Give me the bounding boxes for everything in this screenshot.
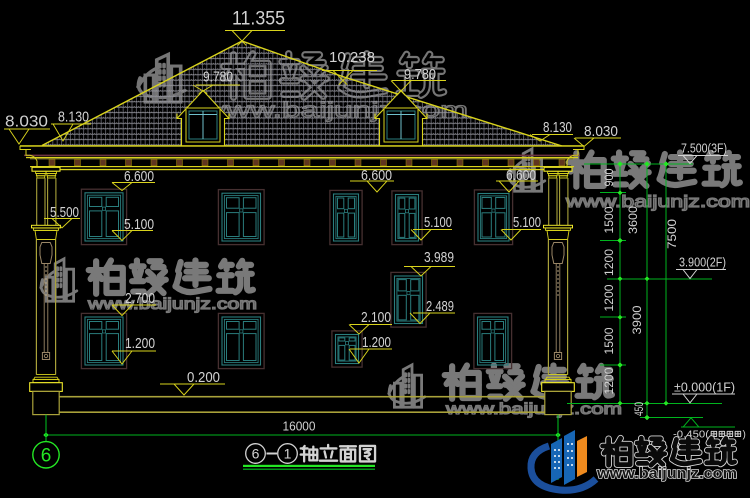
svg-text:3.900(2F): 3.900(2F) xyxy=(679,255,726,270)
svg-text:0.200: 0.200 xyxy=(187,369,220,386)
svg-text:5.100: 5.100 xyxy=(513,214,541,231)
svg-text:1: 1 xyxy=(284,446,292,462)
svg-text:3600: 3600 xyxy=(626,206,640,234)
svg-text:1200: 1200 xyxy=(602,367,616,394)
svg-text:6: 6 xyxy=(41,446,52,467)
svg-text:8.130: 8.130 xyxy=(58,109,89,126)
svg-text:450: 450 xyxy=(632,402,646,416)
svg-text:1200: 1200 xyxy=(602,284,616,311)
svg-text:2.100: 2.100 xyxy=(361,309,391,326)
svg-text:10.238: 10.238 xyxy=(329,49,375,66)
svg-text:www.baijunjz.com: www.baijunjz.com xyxy=(565,192,750,211)
svg-text:6: 6 xyxy=(252,446,260,462)
svg-text:1.200: 1.200 xyxy=(125,335,155,352)
svg-text:11.355: 11.355 xyxy=(232,9,285,30)
svg-text:www.baijunjz.com: www.baijunjz.com xyxy=(87,296,257,313)
svg-text:7.500(3F): 7.500(3F) xyxy=(681,141,727,156)
svg-text:1500: 1500 xyxy=(602,327,616,354)
svg-text:±0.000(1F): ±0.000(1F) xyxy=(674,380,735,395)
svg-text:2.489: 2.489 xyxy=(426,298,454,315)
svg-text:2.700: 2.700 xyxy=(125,290,155,307)
svg-text:3900: 3900 xyxy=(630,305,644,334)
svg-text:5.100: 5.100 xyxy=(424,214,452,231)
svg-text:7500: 7500 xyxy=(665,219,679,249)
svg-text:16000: 16000 xyxy=(283,419,316,434)
svg-text:): ) xyxy=(743,430,746,441)
svg-text:1200: 1200 xyxy=(602,249,616,276)
svg-text:8.030: 8.030 xyxy=(584,123,618,140)
svg-text:900: 900 xyxy=(602,168,616,186)
svg-text:1500: 1500 xyxy=(602,206,616,233)
svg-text:8.030: 8.030 xyxy=(5,114,48,131)
svg-text:9.780: 9.780 xyxy=(203,69,233,86)
svg-text:3.989: 3.989 xyxy=(424,249,454,266)
svg-text:www.baijunjz.com: www.baijunjz.com xyxy=(596,465,737,482)
svg-text:1.200: 1.200 xyxy=(362,334,391,351)
svg-text:8.130: 8.130 xyxy=(543,119,572,136)
